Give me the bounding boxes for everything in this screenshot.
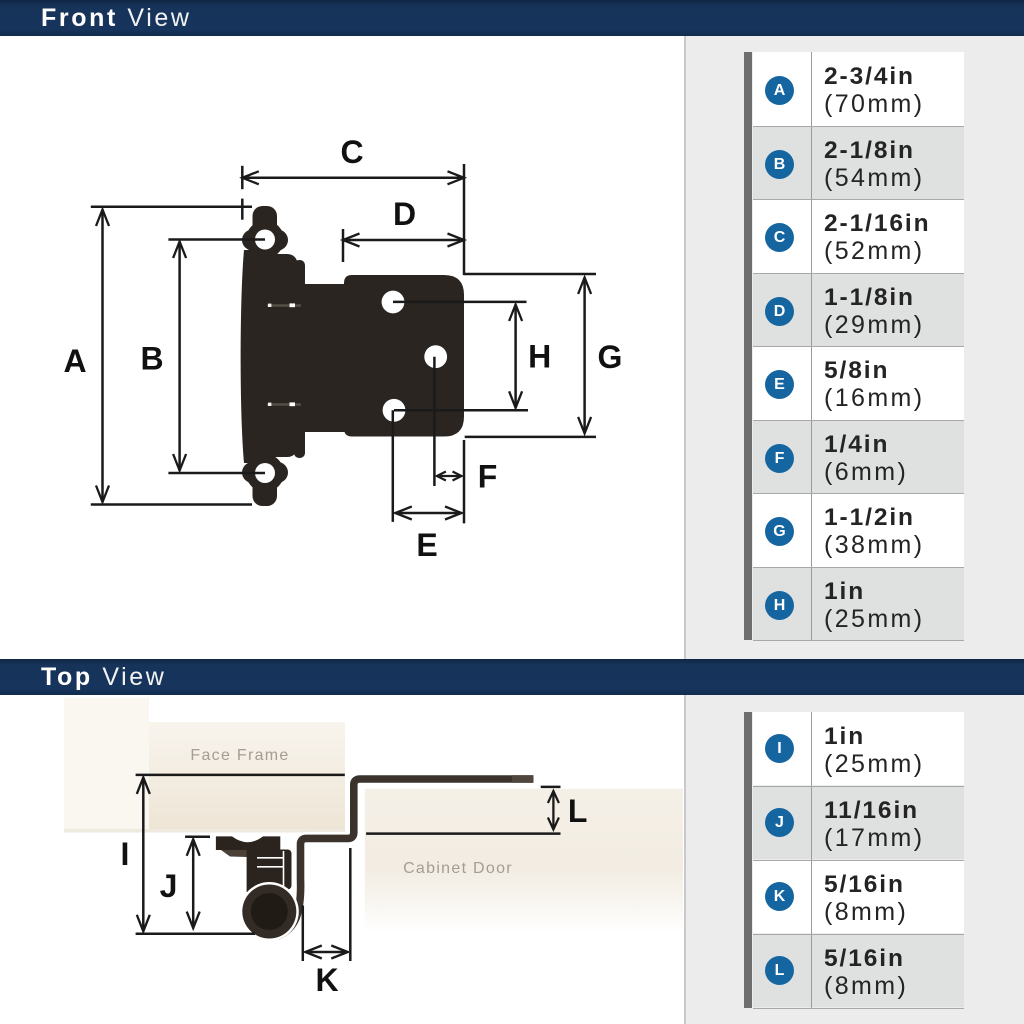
svg-text:L: L — [568, 793, 588, 829]
svg-text:F: F — [478, 459, 498, 495]
svg-text:K: K — [315, 962, 338, 998]
svg-text:J: J — [160, 868, 178, 904]
svg-text:D: D — [393, 196, 416, 232]
svg-text:A: A — [63, 343, 86, 379]
svg-text:I: I — [121, 836, 130, 872]
svg-text:C: C — [340, 134, 363, 170]
svg-text:E: E — [416, 527, 437, 563]
svg-text:Face Frame: Face Frame — [190, 747, 289, 764]
svg-text:G: G — [598, 339, 623, 375]
svg-text:B: B — [140, 341, 163, 377]
svg-text:H: H — [528, 339, 551, 375]
svg-text:Cabinet Door: Cabinet Door — [403, 860, 513, 877]
